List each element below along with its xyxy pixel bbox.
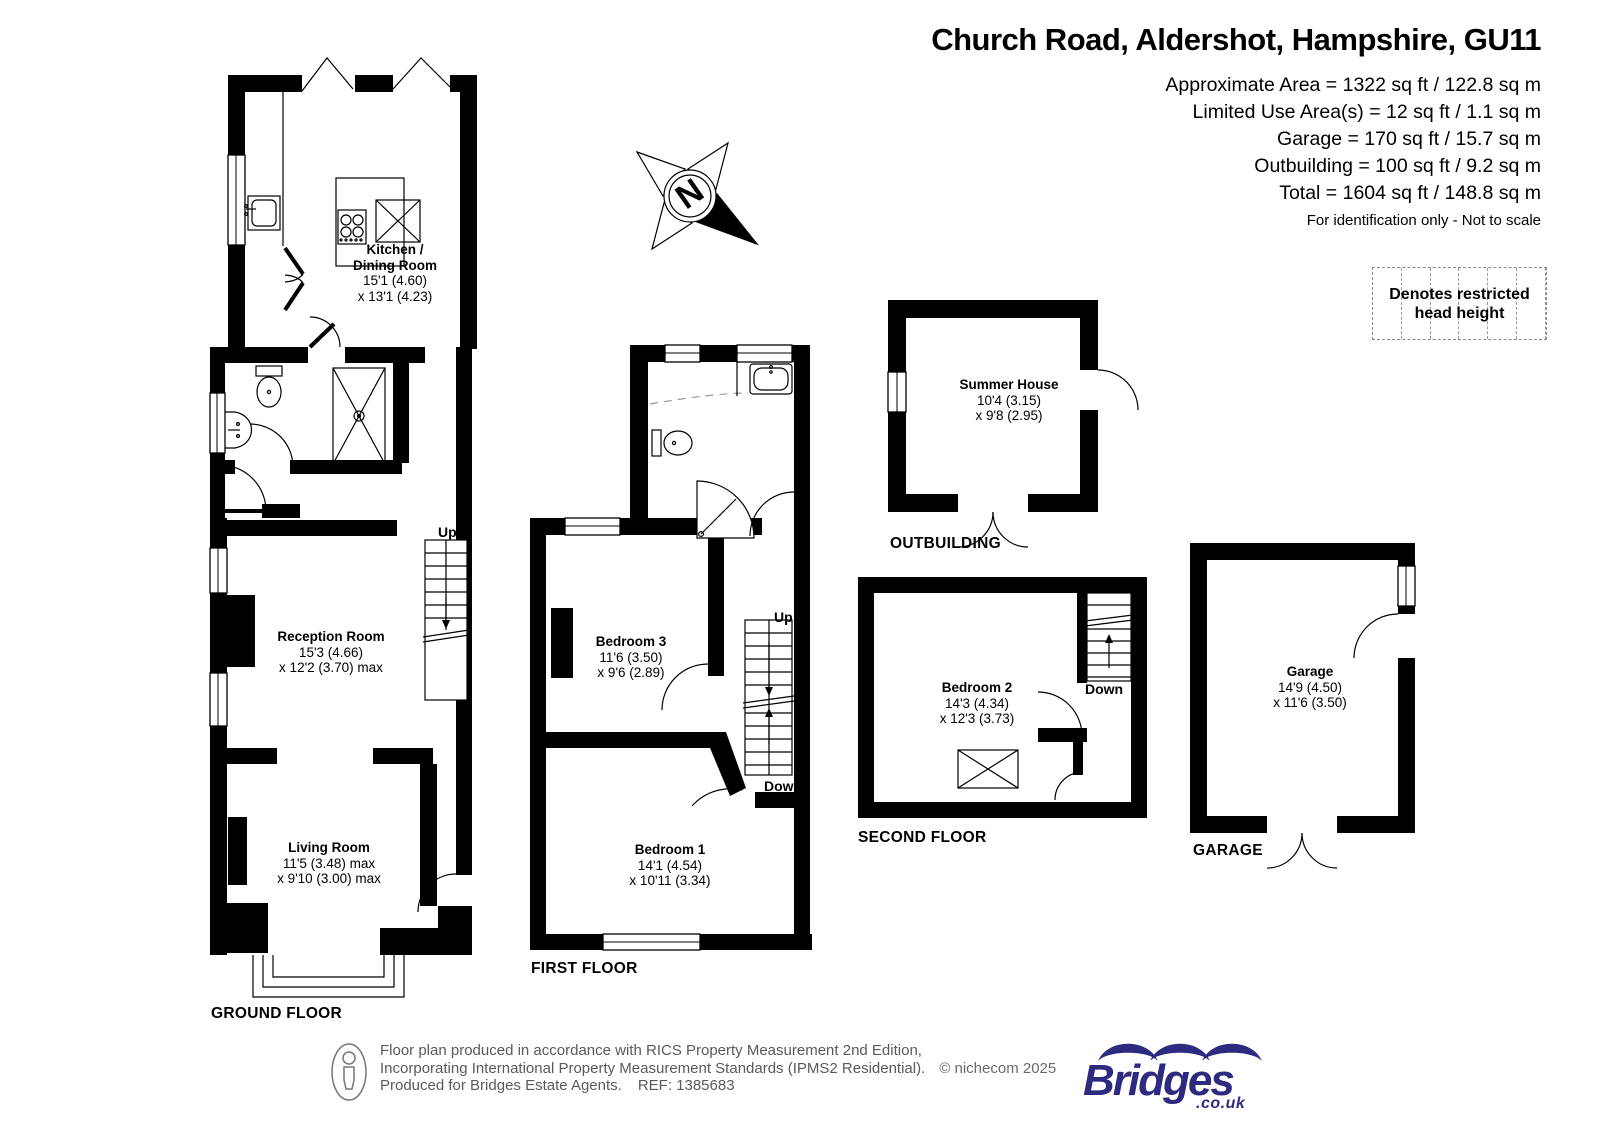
toilet-icon — [256, 366, 282, 407]
person-icon — [332, 1044, 366, 1100]
door-arc — [1267, 833, 1302, 868]
stairs-up-label-first: Up — [774, 609, 793, 625]
door-leaf — [310, 324, 334, 347]
toilet-icon — [652, 430, 692, 456]
bridges-logo-domain: .co.uk — [1196, 1095, 1245, 1113]
corner-shower-icon — [697, 481, 754, 538]
area-line: Total = 1604 sq ft / 148.8 sq m — [931, 180, 1541, 207]
stairs-down-label-first: Down — [764, 778, 802, 794]
footer-line2: Incorporating International Property Mea… — [380, 1060, 1056, 1078]
room-label-bedroom1: Bedroom 1 14'1 (4.54) x 10'11 (3.34) — [629, 842, 710, 889]
hob-icon — [338, 210, 366, 244]
door-arc — [1055, 772, 1083, 800]
page-title: Church Road, Aldershot, Hampshire, GU11 — [931, 22, 1541, 58]
room-label-kitchen: Kitchen / Dining Room 15'1 (4.60) x 13'1… — [353, 242, 437, 304]
door-leaf — [285, 283, 303, 310]
floor-label-garage: GARAGE — [1193, 842, 1263, 860]
room-label-reception: Reception Room 15'3 (4.66) x 12'2 (3.70)… — [277, 629, 384, 676]
room-label-garage: Garage 14'9 (4.50) x 11'6 (3.50) — [1273, 664, 1347, 711]
basin-icon — [737, 362, 792, 396]
door-arc — [1098, 370, 1138, 410]
ground-floor-walls — [210, 75, 477, 955]
room-label-bedroom3: Bedroom 3 11'6 (3.50) x 9'6 (2.89) — [596, 634, 667, 681]
area-line: Outbuilding = 100 sq ft / 9.2 sq m — [931, 153, 1541, 180]
door-arc — [1302, 833, 1337, 868]
bay-window — [253, 955, 404, 997]
door-arc — [1354, 614, 1398, 658]
roof-chevron-icon — [302, 58, 353, 91]
floor-label-first: FIRST FLOOR — [531, 960, 638, 978]
header-block: Church Road, Aldershot, Hampshire, GU11 … — [931, 22, 1541, 229]
outbuilding-window — [888, 372, 906, 412]
floorplan-page: Church Road, Aldershot, Hampshire, GU11 … — [0, 0, 1599, 1131]
copyright: © nichecom 2025 — [939, 1060, 1056, 1077]
rooflight-icon — [958, 750, 1018, 788]
shower-icon — [333, 368, 385, 464]
room-label-summer-house: Summer House 10'4 (3.15) x 9'8 (2.95) — [959, 377, 1058, 424]
area-line: Approximate Area = 1322 sq ft / 122.8 sq… — [931, 72, 1541, 99]
area-line: Garage = 170 sq ft / 15.7 sq m — [931, 126, 1541, 153]
door-arc — [662, 664, 708, 710]
footer-line3: Produced for Bridges Estate Agents.REF: … — [380, 1077, 1056, 1095]
basin-icon — [225, 412, 252, 448]
roof-chevron-icon — [393, 58, 450, 89]
legend-text: Denotes restricted head height — [1373, 285, 1546, 323]
reference-number: REF: 1385683 — [638, 1077, 735, 1094]
disclaimer: For identification only - Not to scale — [931, 212, 1541, 229]
second-stairs — [1085, 593, 1133, 681]
kitchen-unit-icon — [376, 200, 420, 242]
ground-stairs — [423, 540, 469, 700]
door-arc — [250, 424, 293, 467]
area-summary: Approximate Area = 1322 sq ft / 122.8 sq… — [931, 72, 1541, 207]
area-line: Limited Use Area(s) = 12 sq ft / 1.1 sq … — [931, 99, 1541, 126]
floor-label-ground: GROUND FLOOR — [211, 1005, 342, 1023]
garage-window — [1398, 566, 1415, 606]
footer-disclaimer: Floor plan produced in accordance with R… — [380, 1042, 1056, 1095]
door-leaf — [285, 248, 303, 274]
room-label-living: Living Room 11'5 (3.48) max x 9'10 (3.00… — [277, 840, 381, 887]
restricted-head-height-line — [650, 393, 748, 404]
restricted-head-height-legend: Denotes restricted head height — [1372, 267, 1547, 340]
room-label-bedroom2: Bedroom 2 14'3 (4.34) x 12'3 (3.73) — [940, 680, 1015, 727]
outbuilding-plan — [888, 300, 1138, 547]
kitchen-sink-icon — [245, 196, 280, 230]
floor-label-outbuilding: OUTBUILDING — [890, 535, 1001, 553]
stairs-down-label-second: Down — [1085, 681, 1123, 697]
floor-label-second: SECOND FLOOR — [858, 829, 986, 847]
footer-line1: Floor plan produced in accordance with R… — [380, 1042, 1056, 1060]
first-stairs — [743, 620, 794, 775]
stairs-up-label-ground: Up — [438, 524, 457, 540]
